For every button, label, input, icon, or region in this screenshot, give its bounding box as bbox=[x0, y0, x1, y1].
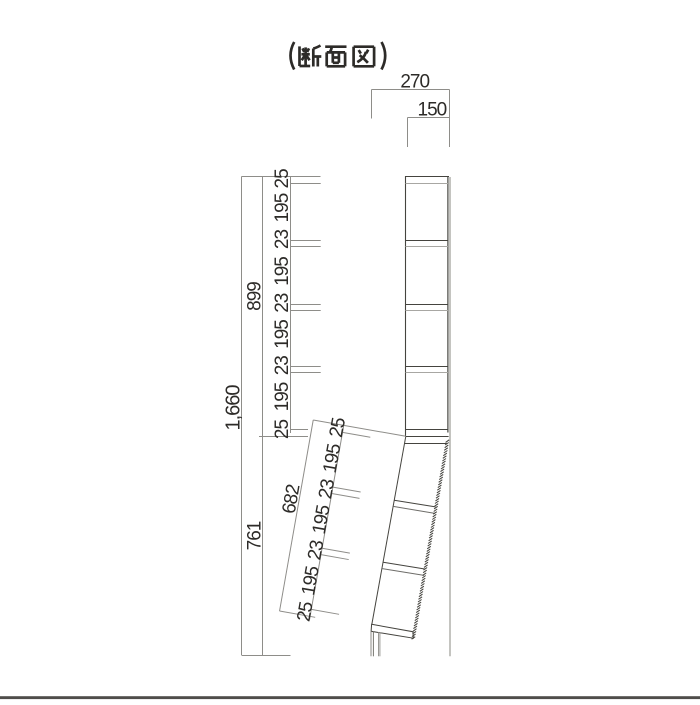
svg-text:23: 23 bbox=[304, 539, 328, 562]
svg-text:23: 23 bbox=[272, 230, 293, 250]
svg-text:195: 195 bbox=[272, 320, 293, 349]
svg-text:899: 899 bbox=[244, 282, 265, 311]
svg-text:23: 23 bbox=[315, 478, 339, 501]
svg-text:23: 23 bbox=[272, 293, 293, 313]
svg-text:25: 25 bbox=[293, 600, 317, 623]
svg-text:23: 23 bbox=[272, 356, 293, 376]
svg-text:195: 195 bbox=[272, 257, 293, 286]
svg-text:25: 25 bbox=[272, 420, 293, 440]
svg-text:25: 25 bbox=[326, 416, 350, 439]
svg-text:195: 195 bbox=[272, 193, 293, 222]
svg-text:25: 25 bbox=[272, 169, 293, 189]
svg-text:761: 761 bbox=[244, 521, 265, 550]
svg-text:195: 195 bbox=[272, 382, 293, 411]
svg-text:1,660: 1,660 bbox=[222, 385, 244, 431]
